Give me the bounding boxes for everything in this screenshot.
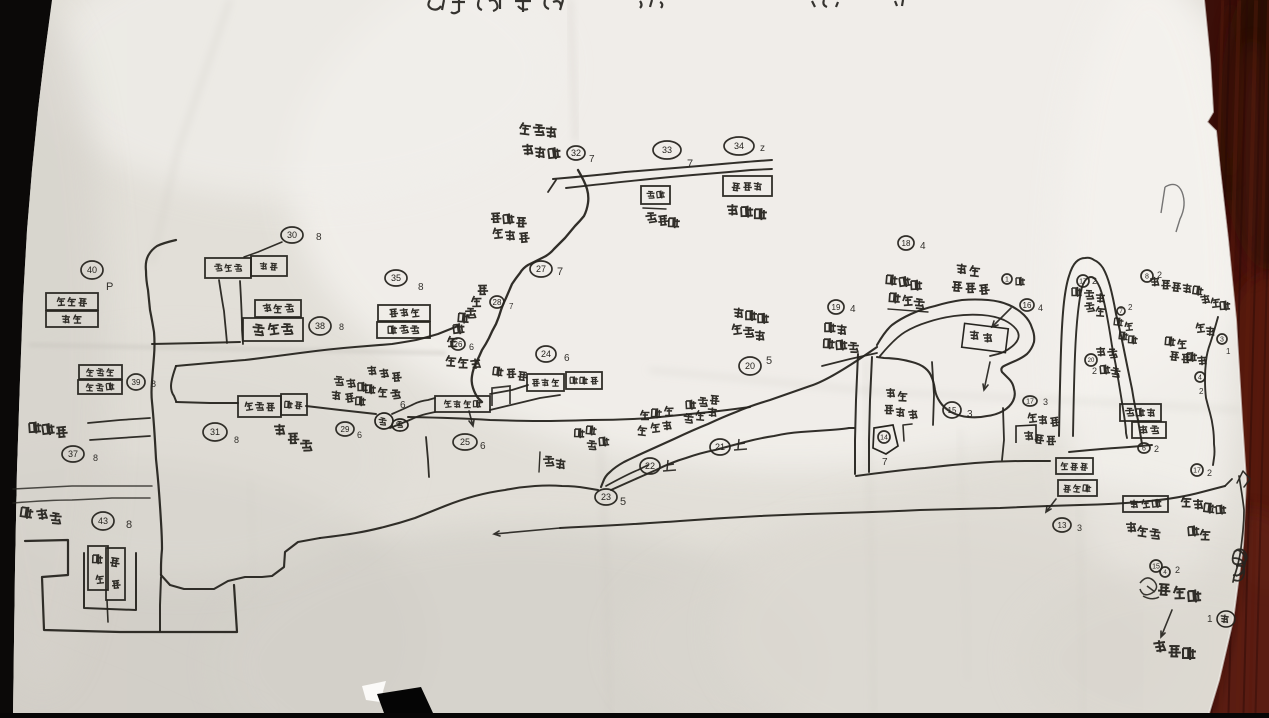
svg-text:6: 6 [469, 342, 474, 352]
svg-text:P: P [106, 281, 113, 293]
svg-text:4: 4 [1198, 375, 1202, 382]
svg-text:2: 2 [1199, 387, 1204, 396]
svg-text:7: 7 [687, 158, 693, 170]
svg-text:43: 43 [98, 516, 108, 526]
svg-text:35: 35 [391, 273, 401, 283]
svg-text:19: 19 [832, 303, 841, 312]
svg-text:3: 3 [1043, 397, 1048, 407]
svg-text:24: 24 [541, 349, 551, 359]
svg-text:2: 2 [1207, 468, 1212, 478]
svg-text:2: 2 [1154, 444, 1159, 454]
svg-text:8: 8 [151, 379, 156, 389]
svg-text:8: 8 [418, 282, 424, 293]
svg-text:16: 16 [1023, 301, 1032, 310]
svg-text:1: 1 [1226, 347, 1231, 356]
svg-text:1: 1 [1005, 277, 1009, 284]
svg-text:7: 7 [557, 266, 563, 278]
svg-text:2: 2 [1092, 366, 1097, 376]
svg-text:2: 2 [1092, 276, 1097, 286]
svg-text:6: 6 [1142, 446, 1146, 453]
svg-text:33: 33 [662, 145, 672, 155]
svg-text:39: 39 [132, 378, 141, 387]
svg-text:4: 4 [920, 241, 926, 252]
svg-text:21: 21 [715, 442, 725, 452]
svg-text:5: 5 [766, 355, 772, 367]
svg-text:14: 14 [880, 435, 888, 442]
svg-text:34: 34 [734, 141, 744, 151]
svg-text:18: 18 [902, 239, 911, 248]
svg-text:3: 3 [1220, 337, 1224, 344]
svg-text:26: 26 [454, 340, 463, 349]
svg-text:17: 17 [1026, 399, 1034, 406]
svg-text:3: 3 [967, 409, 973, 420]
svg-text:25: 25 [460, 437, 470, 447]
svg-text:17: 17 [1079, 279, 1087, 286]
svg-text:2: 2 [1128, 303, 1133, 312]
svg-text:8: 8 [93, 453, 98, 463]
svg-text:30: 30 [287, 230, 297, 240]
svg-text:23: 23 [601, 492, 611, 502]
svg-text:7: 7 [589, 154, 595, 165]
svg-text:6: 6 [564, 353, 570, 364]
svg-text:7: 7 [509, 302, 514, 311]
svg-text:1: 1 [1207, 614, 1213, 625]
svg-text:13: 13 [1058, 521, 1067, 530]
svg-text:8: 8 [1145, 274, 1149, 281]
svg-text:15: 15 [1152, 564, 1160, 571]
svg-text:7: 7 [882, 457, 888, 468]
svg-text:20: 20 [745, 361, 755, 371]
svg-text:8: 8 [234, 435, 239, 445]
svg-text:8: 8 [126, 519, 132, 531]
svg-text:6: 6 [480, 441, 486, 452]
svg-text:38: 38 [315, 321, 325, 331]
svg-text:2: 2 [1175, 565, 1180, 575]
svg-text:5: 5 [620, 496, 626, 508]
svg-text:28: 28 [493, 298, 502, 307]
svg-text:6: 6 [357, 430, 362, 440]
svg-text:37: 37 [68, 449, 78, 459]
svg-text:8: 8 [316, 232, 322, 243]
svg-text:17: 17 [1193, 468, 1201, 475]
svg-text:31: 31 [210, 427, 220, 437]
svg-text:z: z [760, 143, 765, 154]
svg-text:8: 8 [339, 322, 344, 332]
svg-text:4: 4 [850, 304, 856, 315]
svg-text:32: 32 [571, 148, 581, 158]
svg-text:40: 40 [87, 265, 97, 275]
svg-text:4: 4 [1038, 303, 1043, 313]
svg-text:20: 20 [1088, 358, 1095, 364]
svg-text:22: 22 [645, 461, 655, 471]
svg-text:3: 3 [1077, 523, 1082, 533]
svg-text:15: 15 [948, 406, 957, 415]
svg-text:>: > [395, 388, 400, 398]
svg-text:27: 27 [536, 264, 546, 274]
svg-text:29: 29 [341, 425, 350, 434]
